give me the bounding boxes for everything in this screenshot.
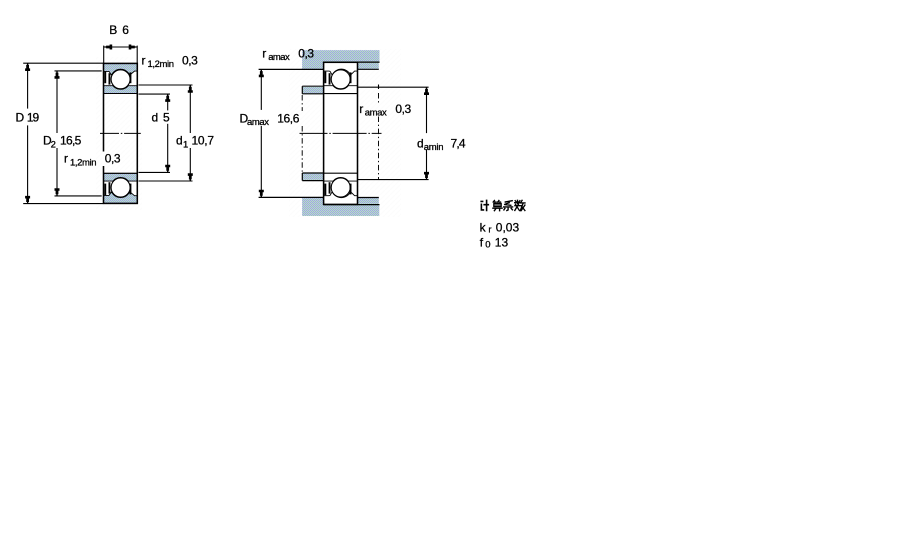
- svg-text:1: 1: [183, 140, 188, 151]
- svg-text:r: r: [488, 225, 491, 236]
- svg-text:0,3: 0,3: [395, 102, 411, 116]
- svg-text:13: 13: [495, 235, 509, 249]
- svg-text:amax: amax: [247, 117, 269, 128]
- svg-text:0,3: 0,3: [298, 46, 314, 60]
- svg-text:d: d: [152, 111, 159, 125]
- svg-text:0,03: 0,03: [496, 220, 520, 234]
- svg-text:d: d: [417, 137, 424, 151]
- svg-text:B: B: [109, 23, 117, 37]
- svg-text:16,5: 16,5: [60, 134, 82, 148]
- svg-text:0: 0: [485, 240, 490, 251]
- svg-text:10,7: 10,7: [192, 134, 215, 148]
- svg-text:d: d: [176, 134, 183, 148]
- svg-text:k: k: [480, 220, 487, 234]
- svg-text:amax: amax: [268, 52, 290, 63]
- svg-text:1,2min: 1,2min: [148, 59, 175, 70]
- svg-text:D: D: [16, 110, 25, 124]
- svg-text:6: 6: [122, 23, 129, 37]
- svg-text:0,3: 0,3: [182, 53, 198, 67]
- svg-text:19: 19: [27, 110, 40, 124]
- svg-text:amax: amax: [365, 108, 387, 119]
- svg-text:r: r: [262, 46, 266, 60]
- svg-text:2: 2: [51, 140, 56, 151]
- svg-text:5: 5: [163, 111, 170, 125]
- svg-text:0,3: 0,3: [105, 151, 121, 165]
- svg-text:r: r: [359, 102, 363, 116]
- svg-text:1,2min: 1,2min: [70, 157, 97, 168]
- svg-text:r: r: [142, 53, 146, 67]
- svg-text:r: r: [64, 151, 68, 165]
- svg-text:16,6: 16,6: [277, 111, 300, 125]
- svg-text:7,4: 7,4: [451, 137, 466, 151]
- svg-text:amin: amin: [424, 142, 444, 153]
